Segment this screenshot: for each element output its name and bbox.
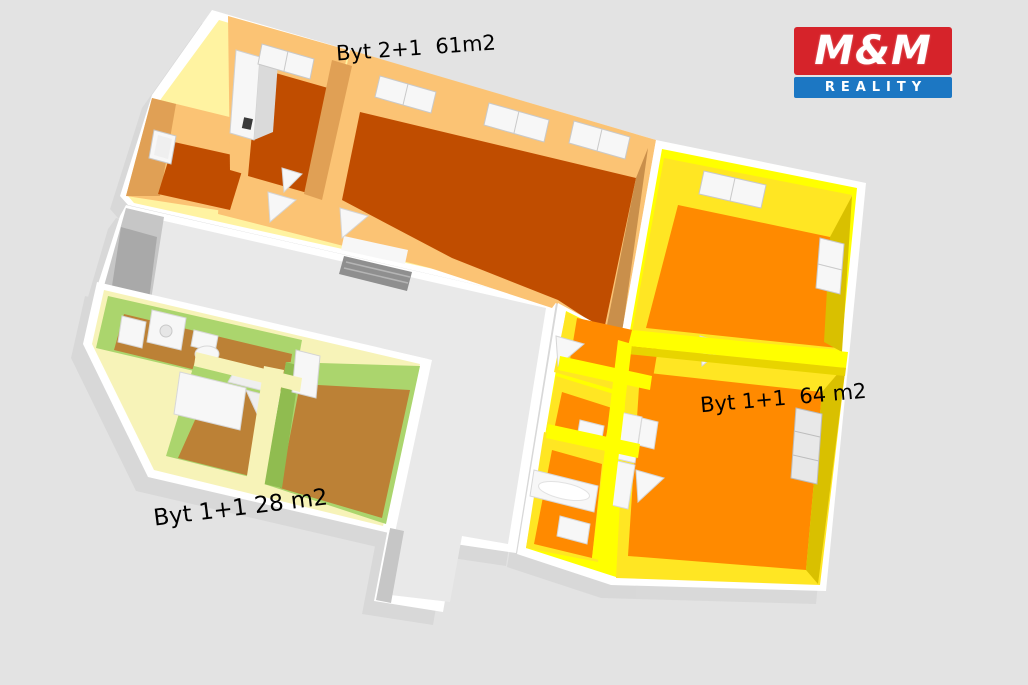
mm-reality-logo: M&M REALITY [794,27,952,98]
logo-subtitle: REALITY [794,77,952,98]
logo-title: M&M [794,27,952,75]
wardrobe [791,408,822,484]
window-side [816,238,844,294]
floor-plan-render: Byt 2+1 61m2 Byt 1+1 64 m2 Byt 1+1 28 m2… [0,0,1028,685]
floor-plan-svg [0,0,1028,685]
sink [118,316,146,348]
